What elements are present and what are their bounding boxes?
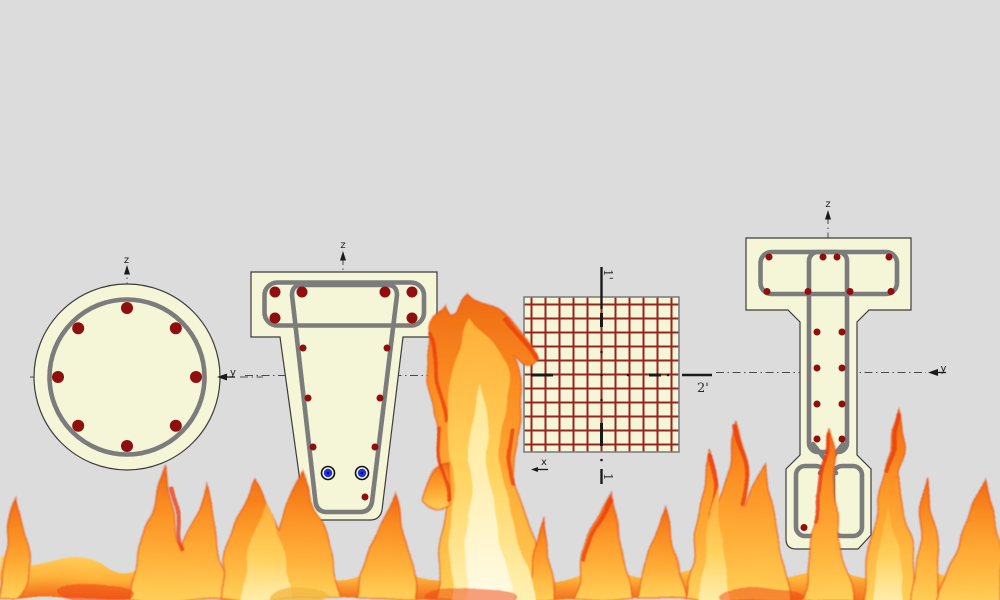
axis-label-y: y — [941, 364, 947, 375]
z-arrow-icon — [825, 210, 831, 220]
y-arrow-icon — [928, 369, 938, 376]
axis-label-z: z — [340, 240, 345, 251]
cut-label-2-prime: 2' — [697, 381, 709, 396]
axis-label-y: y — [230, 368, 236, 379]
mesh-square-diagram: 1' 1 2' x — [524, 267, 712, 484]
x-axis-marker: x — [531, 457, 548, 472]
circular-section-diagram: z y — [30, 255, 263, 470]
axis-label-x: x — [541, 457, 547, 468]
axis-label-z: z — [825, 199, 830, 210]
engineering-diagrams-and-fire-canvas: z y z — [0, 0, 1000, 600]
x-arrow-icon — [531, 467, 538, 472]
cut-label-1-prime: 1' — [601, 269, 615, 280]
axis-label-z: z — [124, 255, 129, 266]
z-arrow-icon — [124, 265, 130, 275]
cut-label-1: 1 — [601, 473, 615, 481]
section-outline — [251, 272, 437, 520]
z-arrow-icon — [340, 251, 346, 261]
